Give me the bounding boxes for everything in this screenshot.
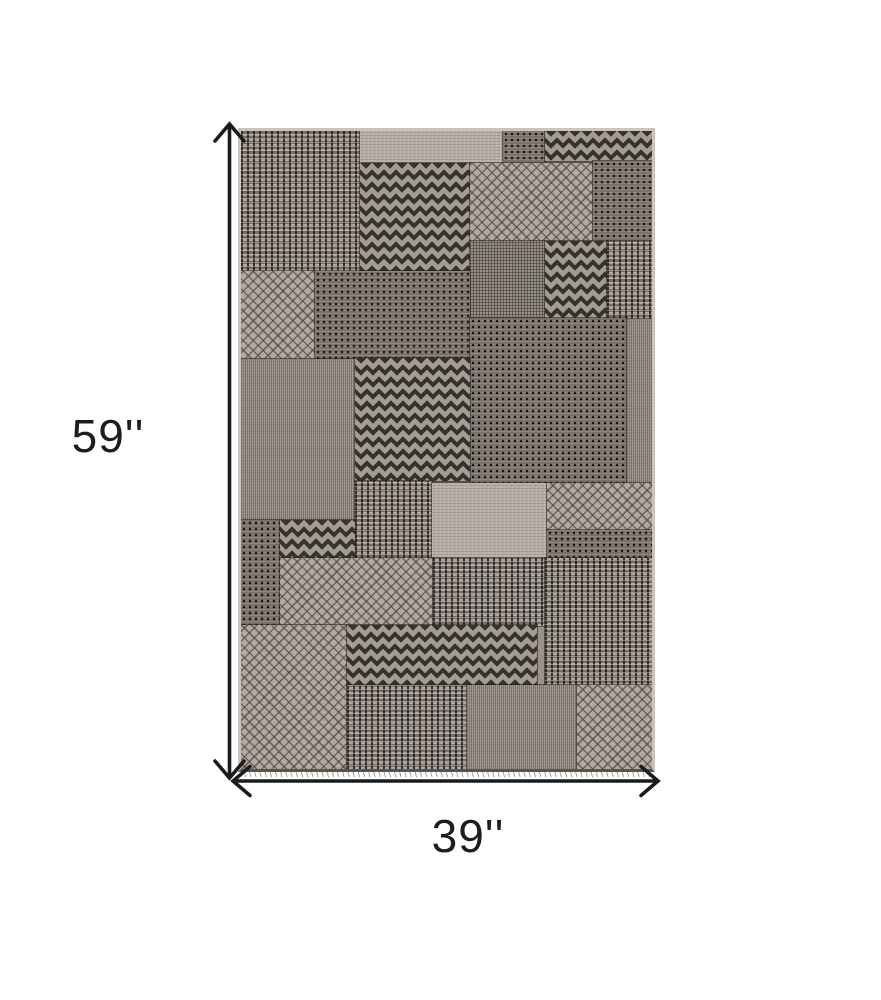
rug-patch-diamond xyxy=(241,625,347,772)
rug-patch-dots xyxy=(315,271,470,359)
rug-patch-chevron xyxy=(545,131,655,161)
rug-patch-dots xyxy=(547,530,655,558)
rug-patch-grid xyxy=(470,241,545,318)
page: { "diagram": { "height_label": "59''", "… xyxy=(0,0,881,1000)
rug-image xyxy=(238,128,655,772)
rug-patch-basket xyxy=(545,558,655,685)
rug-patch-basket xyxy=(355,481,432,559)
rug-patch-basket xyxy=(433,558,545,626)
width-dimension-label: 39'' xyxy=(408,813,528,859)
rug-patch-chevron xyxy=(355,358,470,481)
rug-fringe xyxy=(240,772,653,777)
rug-patches xyxy=(241,131,652,769)
rug-patch-dots xyxy=(503,131,545,163)
rug-patch-weave xyxy=(241,359,355,520)
rug-patch-dots xyxy=(470,318,627,483)
rug-patch-chevron xyxy=(545,241,607,318)
rug-patch-diamond xyxy=(241,271,315,359)
rug-patch-chevron xyxy=(360,163,470,274)
rug-patch-dots xyxy=(241,520,280,625)
height-dimension-label: 59'' xyxy=(48,413,168,459)
rug-patch-chevron xyxy=(347,625,537,685)
rug-patch-diamond xyxy=(577,685,655,772)
rug-patch-plain xyxy=(360,131,503,163)
rug-patch-diamond xyxy=(280,558,433,625)
dimension-diagram: 59'' 39'' xyxy=(0,0,881,1000)
rug-patch-basket xyxy=(607,241,655,319)
rug-patch-weave xyxy=(467,685,577,772)
rug-patch-basket xyxy=(241,131,360,271)
rug-patch-weave xyxy=(627,319,655,483)
rug-patch-diamond xyxy=(547,483,655,530)
rug-patch-diamond xyxy=(470,163,593,241)
rug-patch-dots xyxy=(593,161,655,241)
rug-patch-plain xyxy=(432,483,547,558)
rug-patch-basket xyxy=(347,685,467,772)
rug-patch-chevron xyxy=(280,520,355,558)
